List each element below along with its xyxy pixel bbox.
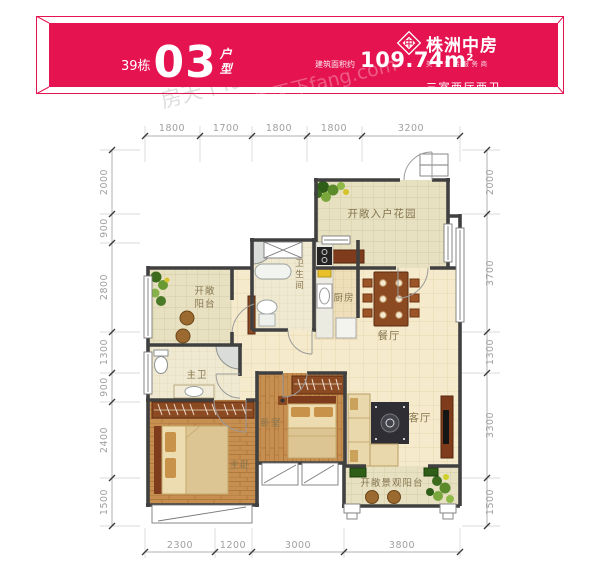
tv-icon <box>443 410 449 444</box>
toilet-icon <box>155 357 168 374</box>
dim-bottom: 3800 <box>389 540 415 551</box>
sink-icon <box>185 387 203 397</box>
dim-right: 1300 <box>485 339 496 365</box>
lamp-icon <box>281 399 285 403</box>
dim-right: 3300 <box>485 412 496 438</box>
unit-type-suffix: 户 型 <box>220 47 232 77</box>
dim-left: 2000 <box>99 169 110 195</box>
wardrobe-icon <box>152 402 254 418</box>
stool-icon <box>366 491 379 504</box>
dim-top: 3200 <box>398 123 424 134</box>
room-label-living: 客厅 <box>409 411 432 424</box>
coffee-table-icon <box>381 414 399 432</box>
dim-right: 3700 <box>485 260 496 286</box>
room-label-bathroom-char: 卫 <box>295 259 305 269</box>
dim-top: 1800 <box>266 123 292 134</box>
floorplan-page: 房天下fang.com <box>0 0 600 585</box>
bed-icon <box>288 396 336 458</box>
room-label-bedroom: 卧室 <box>260 417 281 429</box>
brand-mark: 中 <box>404 38 413 50</box>
dim-bottom: 2300 <box>167 540 193 551</box>
brand-logo-icon: 中 <box>396 30 422 56</box>
pillar <box>344 504 360 513</box>
dim-right: 1500 <box>485 489 496 515</box>
brand-tagline: 美好生活服务商 <box>426 58 546 68</box>
unit-title: 39栋 03 户 型 <box>121 44 232 81</box>
dim-left: 2400 <box>99 427 110 453</box>
header-banner: 39栋 03 户 型 建筑面积约 109.74m2 中 株洲中 <box>36 16 564 94</box>
brand-block: 中 株洲中房 美好生活服务商 三室两厅两卫 <box>396 30 546 94</box>
room-label-bathroom-char: 生 <box>295 269 305 280</box>
unit-type-char: 型 <box>220 62 232 77</box>
pillar <box>347 513 357 519</box>
stool-icon <box>180 311 194 325</box>
layout-summary: 三室两厅两卫 <box>426 79 546 94</box>
dim-left: 1300 <box>99 339 110 365</box>
dim-right: 2000 <box>485 169 496 195</box>
brand-name: 株洲中房 <box>426 31 498 56</box>
room-label-bathroom-char: 间 <box>295 281 305 291</box>
room-label-balcony-line2: 阳台 <box>194 298 215 310</box>
unit-type-char: 户 <box>220 47 232 62</box>
dim-left: 1500 <box>99 489 110 515</box>
planter-box <box>350 468 366 477</box>
pillar <box>440 504 456 513</box>
dim-left: 900 <box>99 377 110 397</box>
dim-bottom: 3000 <box>285 540 311 551</box>
planter-box <box>424 468 438 476</box>
wardrobe-icon <box>292 376 344 394</box>
dim-bottom: 1200 <box>220 540 246 551</box>
dim-top: 1800 <box>159 123 185 134</box>
room-label-view-balcony: 开敞景观阳台 <box>360 477 423 489</box>
dim-left: 900 <box>99 218 110 238</box>
toilet-tank <box>154 350 168 356</box>
banner-surface: 39栋 03 户 型 建筑面积约 109.74m2 中 株洲中 <box>49 23 558 87</box>
unit-number: 03 <box>154 44 217 81</box>
bathtub-icon <box>255 264 291 279</box>
room-label-master-bedroom: 主卧 <box>229 459 250 471</box>
room-label-master-bath: 主卫 <box>186 369 207 381</box>
area-prefix: 建筑面积约 <box>315 60 355 69</box>
dim-left: 2800 <box>99 274 110 300</box>
room-label-balcony-line1: 开敞 <box>194 285 215 297</box>
room-label-entry-garden: 开敞入户花园 <box>348 207 417 220</box>
dim-top: 1700 <box>213 123 239 134</box>
bed-icon <box>154 426 228 494</box>
dim-top: 1800 <box>321 123 347 134</box>
pillar <box>443 513 453 519</box>
room-label-kitchen: 厨房 <box>333 292 354 304</box>
room-label-dining: 餐厅 <box>378 329 401 342</box>
stool-icon <box>388 491 401 504</box>
building-number: 39栋 <box>121 55 151 74</box>
sink-pedestal <box>259 314 275 326</box>
stool-icon <box>176 329 190 343</box>
fridge-icon <box>336 318 356 338</box>
sink-icon <box>257 300 277 314</box>
